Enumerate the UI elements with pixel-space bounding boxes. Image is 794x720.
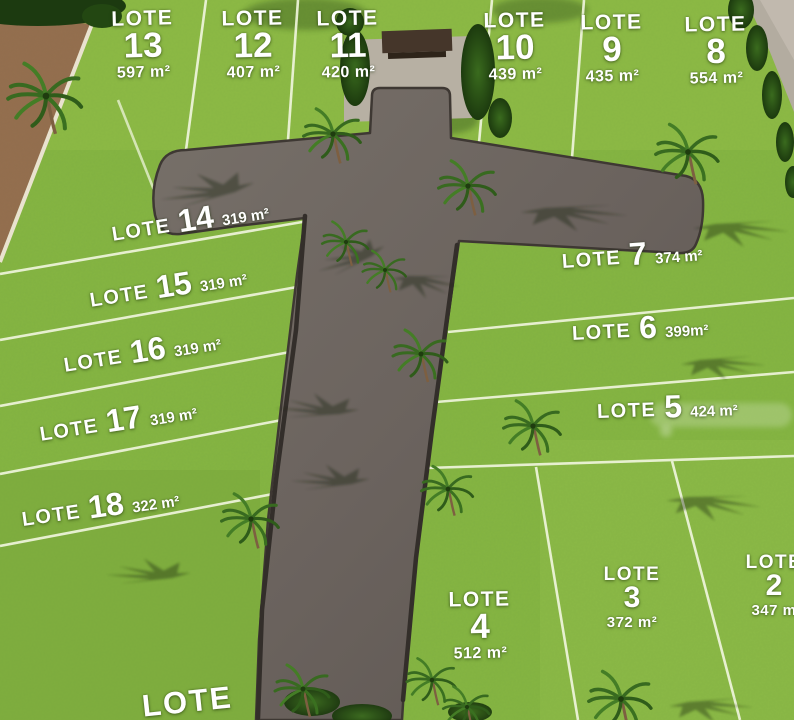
lot-number: 4 bbox=[470, 610, 490, 644]
lot-number: 5 bbox=[664, 390, 683, 423]
lot-number: 8 bbox=[706, 35, 726, 69]
lot-word: LOTE bbox=[571, 319, 631, 345]
lot-8-label: LOTE 8 554 m² bbox=[655, 13, 776, 88]
lot-area: 372 m² bbox=[607, 615, 658, 630]
lot-number: 11 bbox=[329, 29, 367, 63]
lot-9-label: LOTE 9 435 m² bbox=[551, 11, 672, 86]
lot-area: 424 m² bbox=[690, 402, 738, 421]
lot-number: 7 bbox=[628, 237, 648, 270]
lot-number: 15 bbox=[154, 266, 194, 303]
lot-3-label: LOTE 3 372 m² bbox=[572, 565, 692, 630]
lot-number: 17 bbox=[104, 400, 144, 437]
lot-area: 420 m² bbox=[321, 64, 375, 81]
lot-area: 439 m² bbox=[488, 66, 542, 83]
lot-2-label: LOTE 2 347 m bbox=[714, 553, 794, 618]
lot-number: 18 bbox=[86, 487, 126, 524]
lot-11-label: LOTE 11 420 m² bbox=[287, 7, 408, 82]
lot-4-label: LOTE 4 512 m² bbox=[419, 588, 540, 663]
lot-number: 2 bbox=[766, 572, 783, 601]
lot-area: 347 m bbox=[751, 603, 794, 618]
lot-area: 597 m² bbox=[117, 64, 171, 82]
lot-area: 399m² bbox=[665, 321, 709, 340]
lot-number: 12 bbox=[233, 29, 273, 63]
lot-number: 6 bbox=[638, 311, 657, 344]
lot-number: 9 bbox=[602, 33, 622, 67]
lot-number: 16 bbox=[128, 331, 168, 368]
lot-area: 407 m² bbox=[226, 64, 280, 81]
lot-number: 14 bbox=[176, 200, 216, 237]
lot-word: LOTE bbox=[597, 398, 657, 423]
lot-area: 435 m² bbox=[585, 68, 639, 85]
lot-number: 13 bbox=[123, 29, 163, 63]
lot-13-label: LOTE 13 597 m² bbox=[82, 6, 204, 82]
lot-number: 3 bbox=[624, 584, 641, 613]
lot-area: 554 m² bbox=[689, 70, 743, 87]
subdivision-site-plan: LOTE 13 597 m² LOTE 12 407 m² LOTE 11 42… bbox=[0, 0, 794, 720]
lot-area: 512 m² bbox=[453, 645, 507, 662]
lot-number: 10 bbox=[495, 31, 535, 65]
lot-word: LOTE bbox=[561, 246, 622, 273]
lot-area: 374 m² bbox=[655, 247, 704, 267]
lot-5-label: LOTE 5 424 m² bbox=[597, 394, 738, 425]
